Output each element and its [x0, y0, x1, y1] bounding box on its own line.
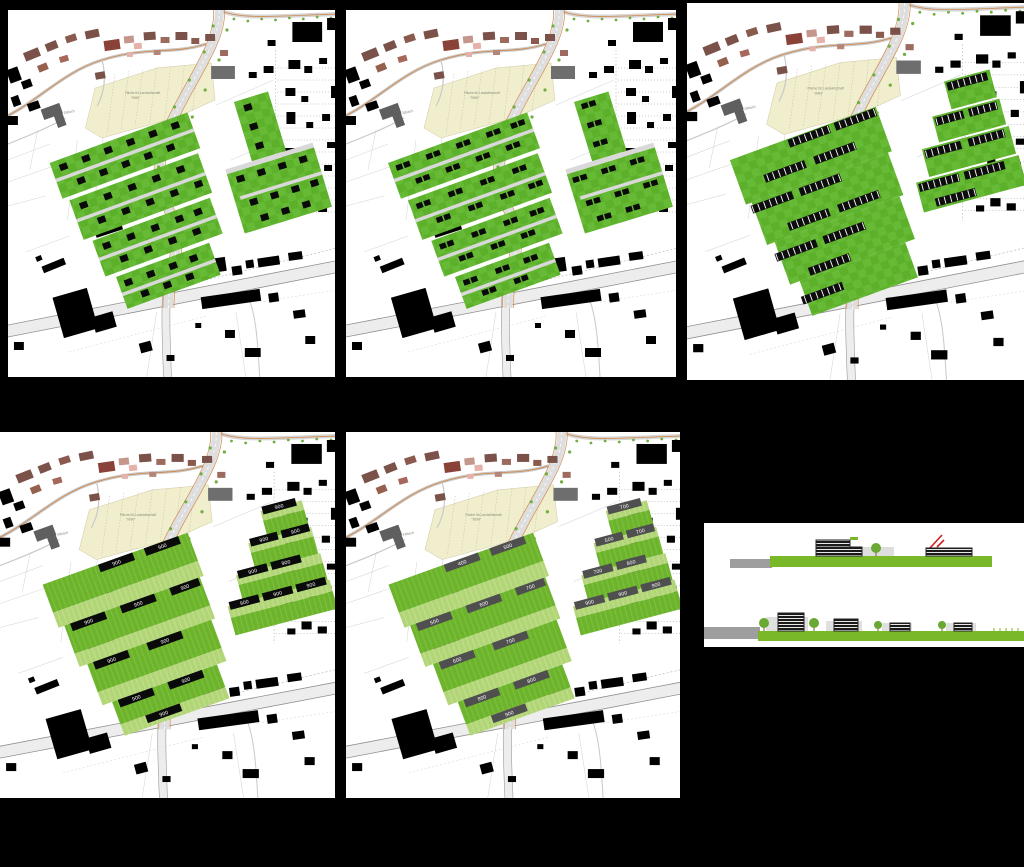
cross-sections-panel — [704, 523, 1024, 647]
stepped-building — [816, 537, 862, 556]
building-1-story — [954, 623, 972, 631]
building-2-story — [834, 619, 858, 631]
site-plan-variant-2 — [346, 10, 676, 377]
ground-band — [758, 631, 1024, 641]
figure-grid: Fläche für Landwirtschaft "9090" Jabach — [0, 0, 1024, 867]
road-section — [704, 627, 760, 639]
site-plan-variant-5: 400 500 500 600 700 600 700 800 800 900 … — [346, 432, 680, 798]
building-1-story — [890, 623, 910, 631]
building-3-story — [778, 613, 804, 631]
site-plan-variant-4: 900 900 900 900 900 900 900 900 900 900 … — [0, 432, 335, 798]
site-plan-variant-3 — [687, 3, 1024, 380]
green-deck — [770, 556, 992, 567]
site-plan-variant-1 — [8, 10, 335, 377]
road-section — [730, 559, 772, 568]
flat-building — [926, 548, 972, 556]
